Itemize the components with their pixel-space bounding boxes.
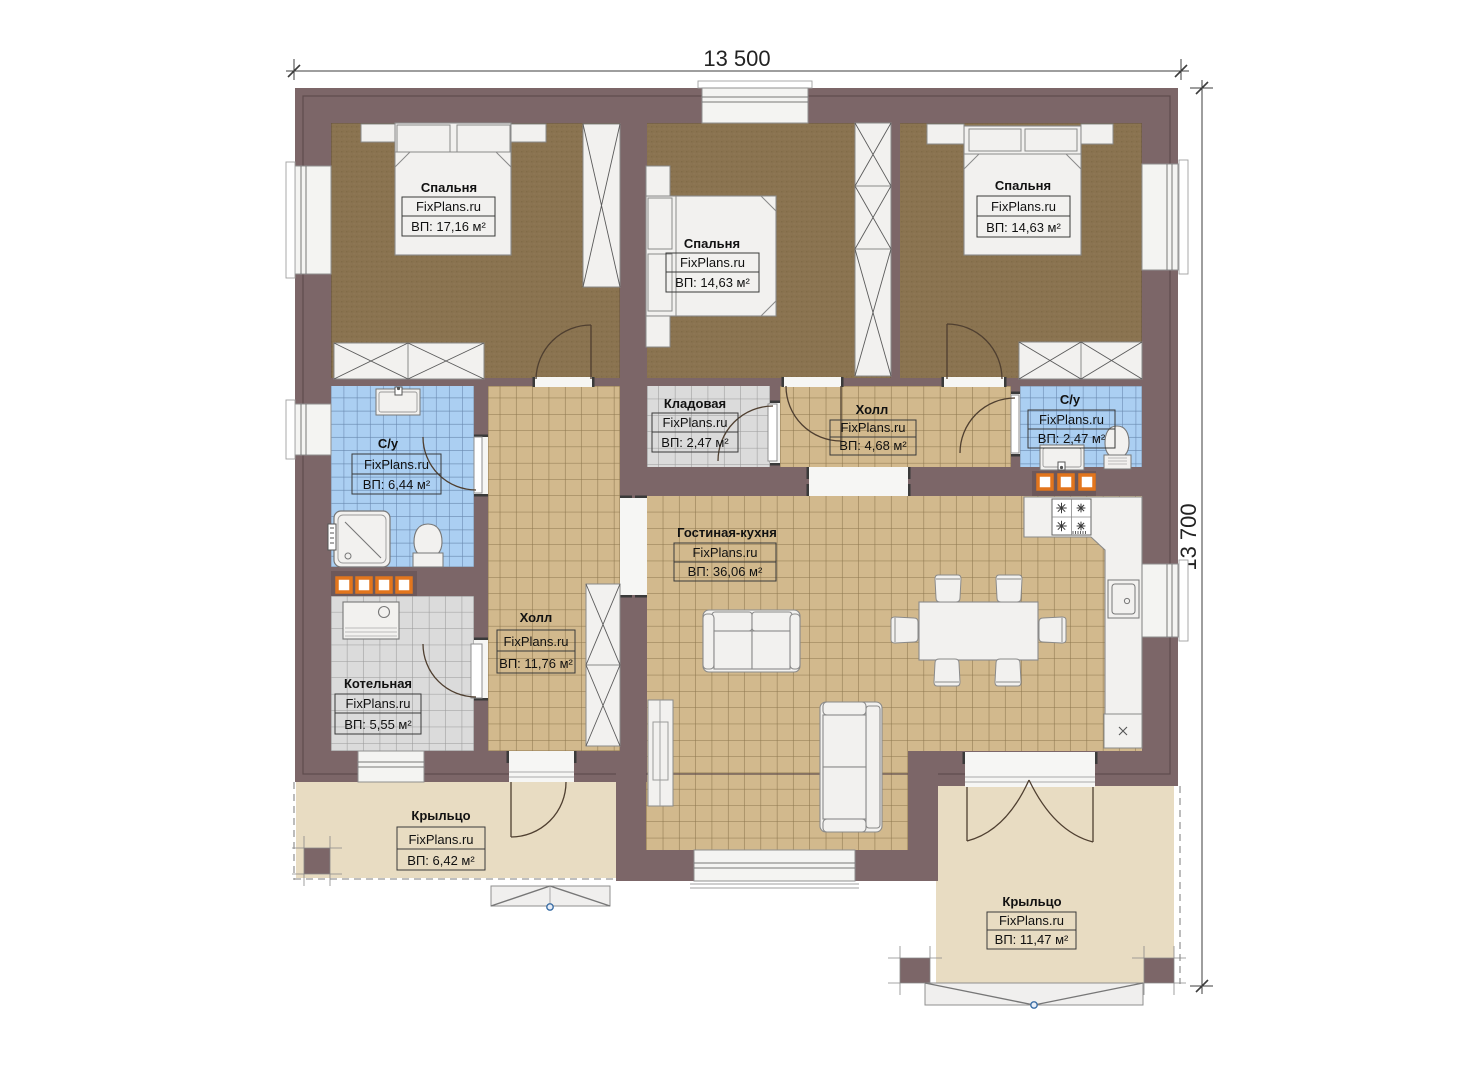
svg-text:ВП: 17,16 м²: ВП: 17,16 м² [411, 219, 486, 234]
svg-text:Холл: Холл [856, 402, 889, 417]
svg-text:ВП: 6,42 м²: ВП: 6,42 м² [407, 853, 475, 868]
svg-text:ВП: 2,47 м²: ВП: 2,47 м² [661, 435, 729, 450]
svg-text:FixPlans.ru: FixPlans.ru [662, 415, 727, 430]
svg-text:Крыльцо: Крыльцо [411, 808, 470, 823]
svg-text:13 500: 13 500 [703, 46, 770, 71]
svg-text:ВП: 11,76 м²: ВП: 11,76 м² [499, 656, 573, 671]
svg-text:С/у: С/у [1060, 392, 1081, 407]
svg-text:ВП: 14,63 м²: ВП: 14,63 м² [986, 220, 1061, 235]
svg-text:Котельная: Котельная [344, 676, 412, 691]
svg-text:Спальня: Спальня [684, 236, 740, 251]
svg-text:FixPlans.ru: FixPlans.ru [999, 913, 1064, 928]
svg-text:FixPlans.ru: FixPlans.ru [692, 545, 757, 560]
svg-text:ВП: 5,55 м²: ВП: 5,55 м² [344, 717, 412, 732]
svg-text:ВП: 6,44 м²: ВП: 6,44 м² [363, 477, 431, 492]
svg-text:FixPlans.ru: FixPlans.ru [503, 634, 568, 649]
svg-text:FixPlans.ru: FixPlans.ru [840, 420, 905, 435]
svg-text:FixPlans.ru: FixPlans.ru [364, 457, 429, 472]
svg-text:Крыльцо: Крыльцо [1002, 894, 1061, 909]
svg-text:С/у: С/у [378, 436, 399, 451]
svg-text:Спальня: Спальня [995, 178, 1051, 193]
svg-text:Гостиная-кухня: Гостиная-кухня [677, 525, 777, 540]
svg-text:Спальня: Спальня [421, 180, 477, 195]
svg-text:ВП: 11,47 м²: ВП: 11,47 м² [995, 932, 1069, 947]
svg-text:FixPlans.ru: FixPlans.ru [416, 199, 481, 214]
svg-text:ВП: 4,68 м²: ВП: 4,68 м² [839, 438, 907, 453]
svg-text:FixPlans.ru: FixPlans.ru [680, 255, 745, 270]
svg-text:ВП: 14,63 м²: ВП: 14,63 м² [675, 275, 750, 290]
svg-text:Холл: Холл [520, 610, 553, 625]
svg-text:ВП: 2,47 м²: ВП: 2,47 м² [1038, 431, 1106, 446]
svg-text:FixPlans.ru: FixPlans.ru [345, 696, 410, 711]
svg-text:ВП: 36,06 м²: ВП: 36,06 м² [688, 564, 763, 579]
svg-text:FixPlans.ru: FixPlans.ru [408, 832, 473, 847]
svg-text:FixPlans.ru: FixPlans.ru [991, 199, 1056, 214]
svg-text:FixPlans.ru: FixPlans.ru [1039, 412, 1104, 427]
svg-text:Кладовая: Кладовая [664, 396, 726, 411]
